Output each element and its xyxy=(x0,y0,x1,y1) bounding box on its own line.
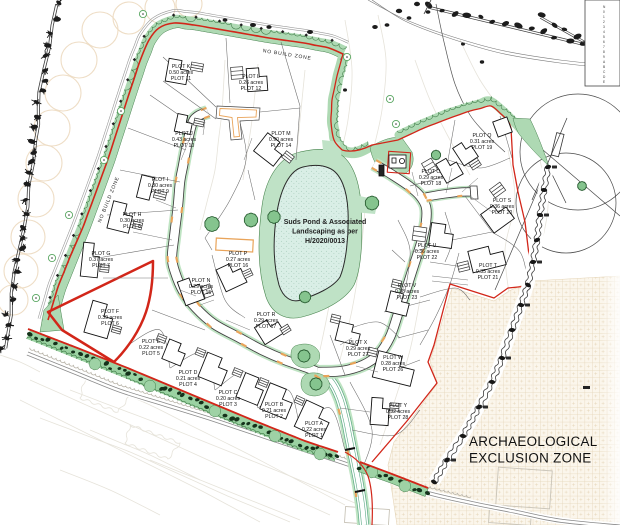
svg-text:PLOT L0.26 acresPLOT 12: PLOT L0.26 acresPLOT 12 xyxy=(239,74,264,92)
svg-text:3: 3 xyxy=(603,25,605,29)
svg-text:PLOT E0.22 acresPLOT 5: PLOT E0.22 acresPLOT 5 xyxy=(139,339,164,357)
svg-text:6: 6 xyxy=(603,40,605,44)
svg-text:0: 0 xyxy=(603,10,605,14)
svg-text:PLOT C0.20 acresPLOT 3: PLOT C0.20 acresPLOT 3 xyxy=(216,390,241,408)
svg-text:PLOT A0.22 acresPLOT 1: PLOT A0.22 acresPLOT 1 xyxy=(302,421,327,439)
svg-text:PLOT O0.29 acresPLOT 18: PLOT O0.29 acresPLOT 18 xyxy=(419,169,444,187)
svg-text:PLOT F0.39 acresPLOT 6: PLOT F0.39 acresPLOT 6 xyxy=(98,309,123,327)
svg-text:PLOT K0.50 acresPLOT 11: PLOT K0.50 acresPLOT 11 xyxy=(169,64,194,82)
svg-text:PLOT B0.21 acresPLOT 2: PLOT B0.21 acresPLOT 2 xyxy=(262,402,287,420)
svg-text:PLOT Y0.32 acresPLOT 28: PLOT Y0.32 acresPLOT 28 xyxy=(386,403,411,421)
svg-text:1: 1 xyxy=(603,15,605,19)
svg-text:ARCHAEOLOGICALEXCLUSION ZONE: ARCHAEOLOGICALEXCLUSION ZONE xyxy=(469,434,597,466)
svg-text:PLOT M0.90 acresPLOT 14: PLOT M0.90 acresPLOT 14 xyxy=(269,131,294,149)
svg-text:PLOT G0.37 acresPLOT 7: PLOT G0.37 acresPLOT 7 xyxy=(89,251,114,269)
svg-text:PLOT V0.38 acresPLOT 23: PLOT V0.38 acresPLOT 23 xyxy=(395,283,420,301)
svg-text:PLOT P0.27 acresPLOT 16: PLOT P0.27 acresPLOT 16 xyxy=(226,251,251,269)
svg-text:PLOT S0.36 acresPLOT 20: PLOT S0.36 acresPLOT 20 xyxy=(490,198,515,216)
svg-text:PLOT W0.28 acresPLOT 26: PLOT W0.28 acresPLOT 26 xyxy=(381,355,406,373)
svg-text:PLOT H0.30 acresPLOT 8: PLOT H0.30 acresPLOT 8 xyxy=(120,212,145,230)
svg-text:PLOT U0.36 acresPLOT 22: PLOT U0.36 acresPLOT 22 xyxy=(415,243,440,261)
svg-text:2: 2 xyxy=(603,20,605,24)
svg-text:PLOT Q0.31 acresPLOT 19: PLOT Q0.31 acresPLOT 19 xyxy=(470,133,495,151)
svg-text:B: B xyxy=(603,65,605,69)
svg-text:PLOT D0.21 acresPLOT 4: PLOT D0.21 acresPLOT 4 xyxy=(176,370,201,388)
svg-text:PLOT N0.29 acresPLOT 15: PLOT N0.29 acresPLOT 15 xyxy=(189,278,214,296)
svg-text:5: 5 xyxy=(603,35,605,39)
svg-text:8: 8 xyxy=(603,50,605,54)
svg-text:PLOT X0.29 acresPLOT 27: PLOT X0.29 acresPLOT 27 xyxy=(346,340,371,358)
svg-text:PLOT R0.29 acresPLOT 17: PLOT R0.29 acresPLOT 17 xyxy=(254,312,279,330)
svg-text:4: 4 xyxy=(603,30,605,34)
svg-text:E: E xyxy=(603,80,605,84)
svg-text:9: 9 xyxy=(603,55,605,59)
svg-text:PLOT T0.35 acresPLOT 21: PLOT T0.35 acresPLOT 21 xyxy=(476,263,501,281)
svg-text:7: 7 xyxy=(603,45,605,49)
